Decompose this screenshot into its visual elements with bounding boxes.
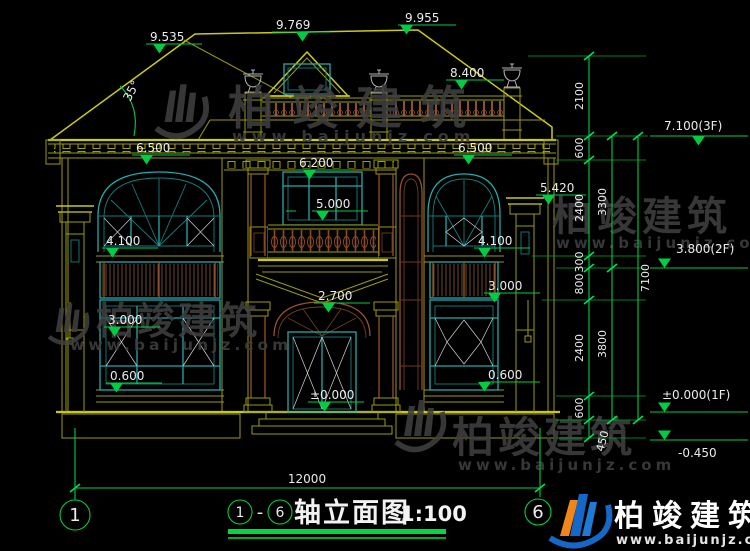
cad-elevation-drawing: 柏竣建筑 www.baijunjz.com 柏竣建筑 www.baijunjz.… — [0, 0, 750, 551]
right-narrow-arched-window — [400, 174, 422, 390]
title-axis-start: 1 — [236, 505, 245, 521]
elev-roof-deck-label: 8.400 — [450, 66, 484, 80]
watermark-url: www.baijunjz.com — [232, 127, 475, 146]
elev-pillar-right-label: 5.420 — [540, 181, 574, 195]
watermark-left: 柏竣建筑 www.baijunjz.com — [49, 299, 292, 354]
elev-eave-right-label: 6.500 — [458, 141, 492, 155]
elev-left-upper-label: 4.100 — [106, 234, 140, 248]
roof-angle-label: 35° — [120, 78, 142, 103]
drawing-sheet: 柏竣建筑 www.baijunjz.com 柏竣建筑 www.baijunjz.… — [0, 0, 750, 551]
elev-roof-left-label: 9.535 — [150, 30, 184, 44]
dim-12000: 12000 — [288, 472, 326, 486]
elev-eave-left-label: 6.500 — [136, 141, 170, 155]
elev-arch-label: 2.700 — [318, 289, 352, 303]
elev-right-upper-label: 4.100 — [478, 234, 512, 248]
dim-2100: 2100 — [573, 82, 586, 110]
brand-logo: 柏竣建筑 www.baijunjz.com — [550, 494, 750, 548]
urn-right — [502, 64, 522, 87]
title-axis-end: 6 — [276, 505, 285, 521]
marker-right-lower-sill: 0.600 — [478, 368, 540, 392]
marker-floor1: ±0.000(1F) — [650, 388, 748, 412]
watermark-url: www.baijunjz.com — [70, 336, 292, 354]
elev-ridge-label: 9.769 — [276, 18, 310, 32]
title-underline-thick — [228, 529, 446, 534]
axis-1-label: 1 — [69, 505, 80, 526]
dim-3300: 3300 — [596, 188, 609, 216]
level-floor1-label: ±0.000(1F) — [662, 388, 730, 402]
title-block: 1 - 6 轴立面图 1:100 — [228, 497, 467, 539]
dim-2400-a: 2400 — [573, 194, 586, 222]
balcony — [250, 225, 396, 272]
brand-logo-name: 柏竣建筑 — [614, 499, 750, 534]
dim-800: 800 — [573, 274, 586, 295]
marker-right-louver-base: 3.000 — [484, 279, 540, 303]
axis-6-label: 6 — [532, 502, 543, 523]
dim-600-a: 600 — [573, 138, 586, 159]
dim-7100: 7100 — [639, 264, 652, 292]
elev-right-louver-label: 3.000 — [488, 279, 522, 293]
level-floor2-label: 3.800(2F) — [676, 242, 734, 256]
dimension-chains-right: 2100 600 2400 300 800 2400 600 450 3300 … — [528, 52, 652, 453]
marker-left-lower-sill: 0.600 — [106, 369, 162, 393]
left-wing-louver-band — [100, 262, 220, 298]
watermark-top: 柏竣建筑 www.baijunjz.com — [156, 81, 484, 146]
entry-steps — [252, 412, 392, 434]
drawing-scale: 1:100 — [400, 502, 467, 526]
marker-balcony-window: 5.000 — [286, 197, 368, 221]
elev-left-louver-label: 3.000 — [108, 313, 142, 327]
elev-door-base-label: ±0.000 — [310, 388, 354, 402]
elev-roof-right-label: 9.955 — [405, 11, 439, 25]
dim-600-b: 600 — [573, 398, 586, 419]
title-underline-thin — [228, 537, 446, 539]
marker-floor3: 7.100(3F) — [650, 119, 748, 146]
elev-left-lower-label: 0.600 — [110, 369, 144, 383]
level-floor3-label: 7.100(3F) — [664, 119, 722, 133]
brand-logo-icon — [550, 494, 609, 546]
level-ground-offset-label: -0.450 — [678, 446, 717, 460]
elev-balcony-label: 5.000 — [316, 197, 350, 211]
marker-ridge: 9.769 — [272, 18, 330, 42]
watermark-url: www.baijunjz.com — [458, 456, 675, 474]
dim-3800: 3800 — [596, 330, 609, 358]
marker-roof-right: 9.955 — [398, 11, 456, 35]
dim-300: 300 — [573, 252, 586, 273]
floor-level-markers: 7.100(3F) 3.800(2F) ±0.000(1F) -0.450 — [650, 119, 748, 460]
drawing-title: 轴立面图 — [294, 497, 410, 529]
elev-right-lower-label: 0.600 — [488, 368, 522, 382]
title-axis-separator: - — [257, 502, 264, 523]
elev-window-2f-label: 6.200 — [299, 156, 333, 170]
dim-2400-b: 2400 — [573, 334, 586, 362]
brand-logo-url: www.baijunjz.com — [616, 533, 750, 548]
